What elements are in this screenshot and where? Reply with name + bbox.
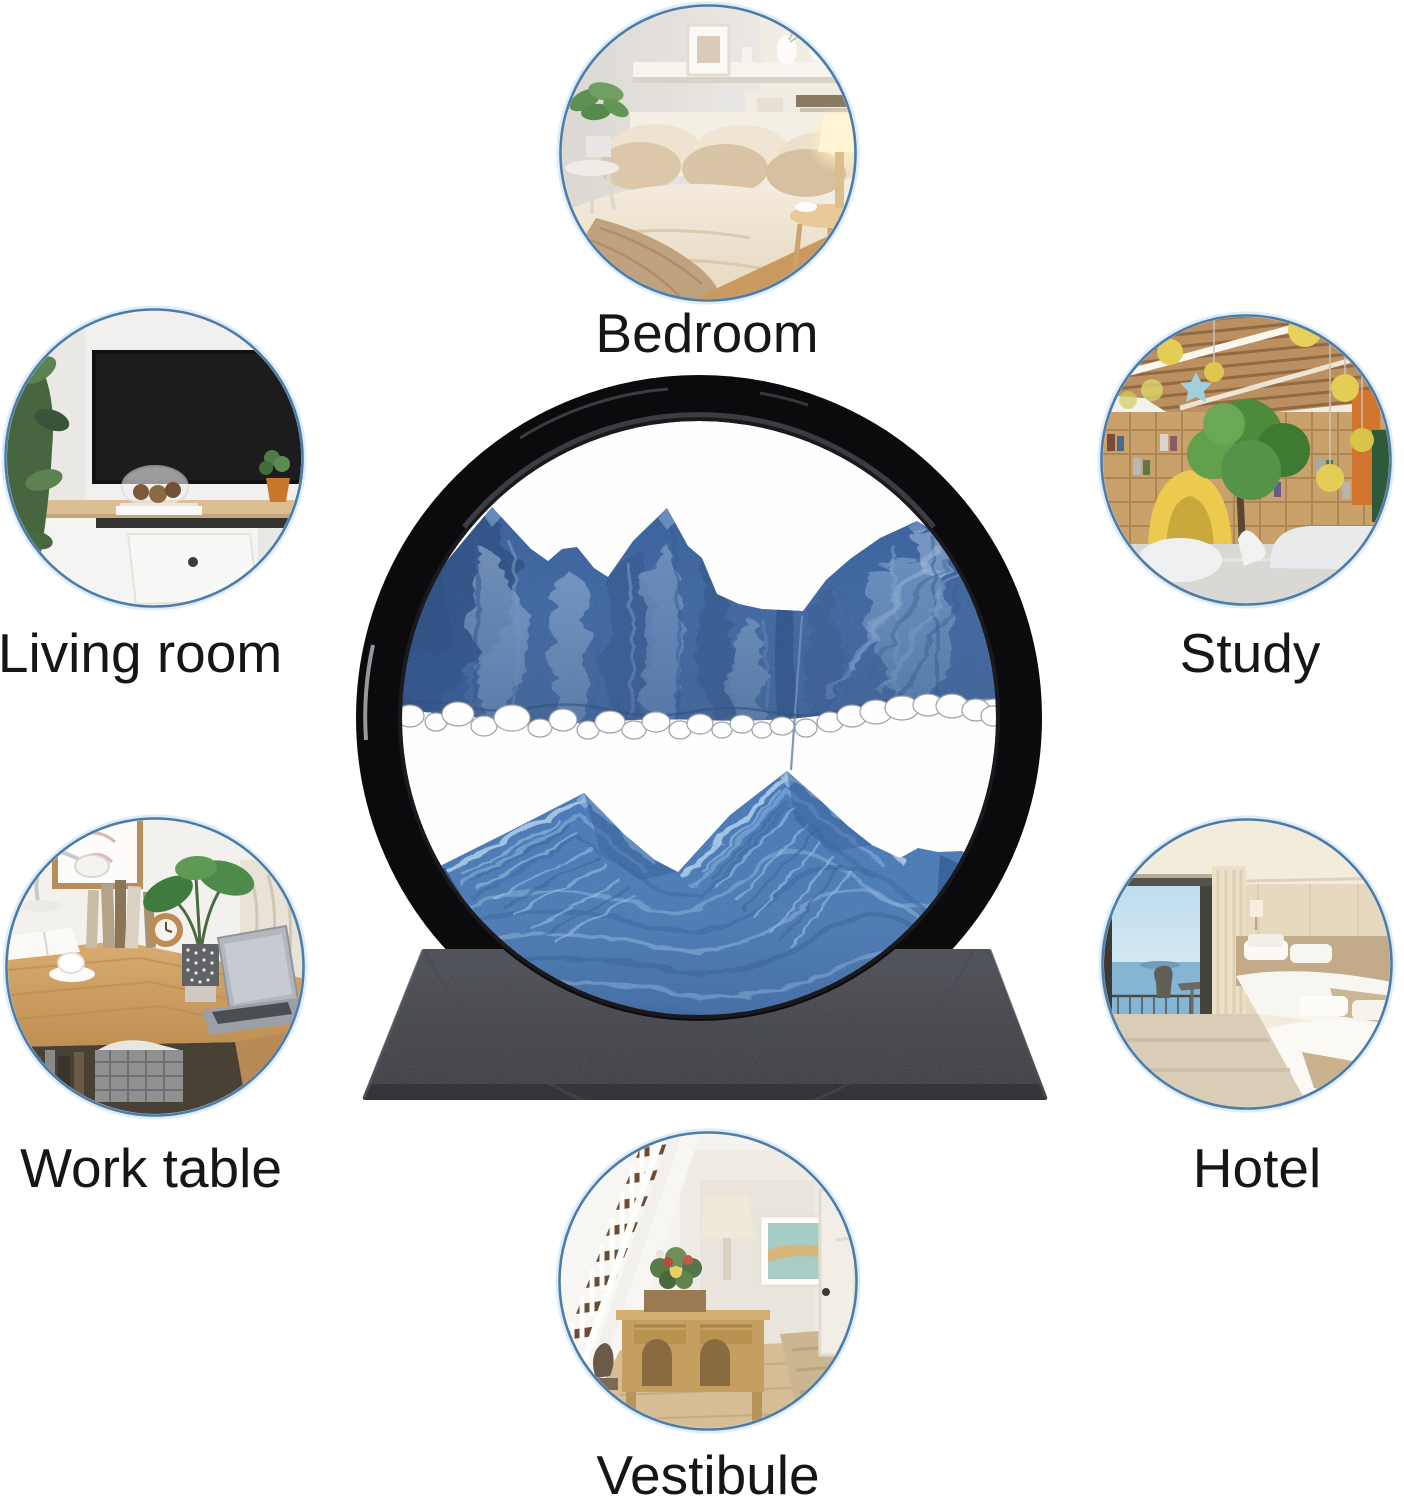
svg-text:Living room: Living room bbox=[0, 622, 282, 684]
svg-text:Hotel: Hotel bbox=[1193, 1137, 1321, 1199]
svg-text:Study: Study bbox=[1180, 622, 1321, 684]
svg-text:Bedroom: Bedroom bbox=[595, 302, 818, 364]
svg-text:Work table: Work table bbox=[20, 1137, 282, 1199]
svg-text:Vestibule: Vestibule bbox=[596, 1444, 819, 1500]
